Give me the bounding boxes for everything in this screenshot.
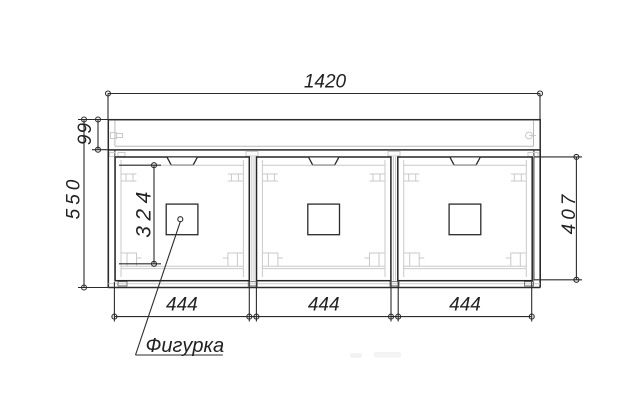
- svg-text:444: 444: [449, 294, 481, 315]
- svg-text:444: 444: [308, 294, 340, 315]
- svg-text:550: 550: [64, 176, 85, 220]
- svg-text:407: 407: [559, 191, 580, 235]
- svg-text:444: 444: [166, 294, 198, 315]
- svg-text:99: 99: [75, 122, 96, 145]
- svg-text:324: 324: [133, 186, 156, 238]
- svg-text:1420: 1420: [304, 72, 347, 93]
- svg-text:Фигурка: Фигурка: [146, 335, 225, 357]
